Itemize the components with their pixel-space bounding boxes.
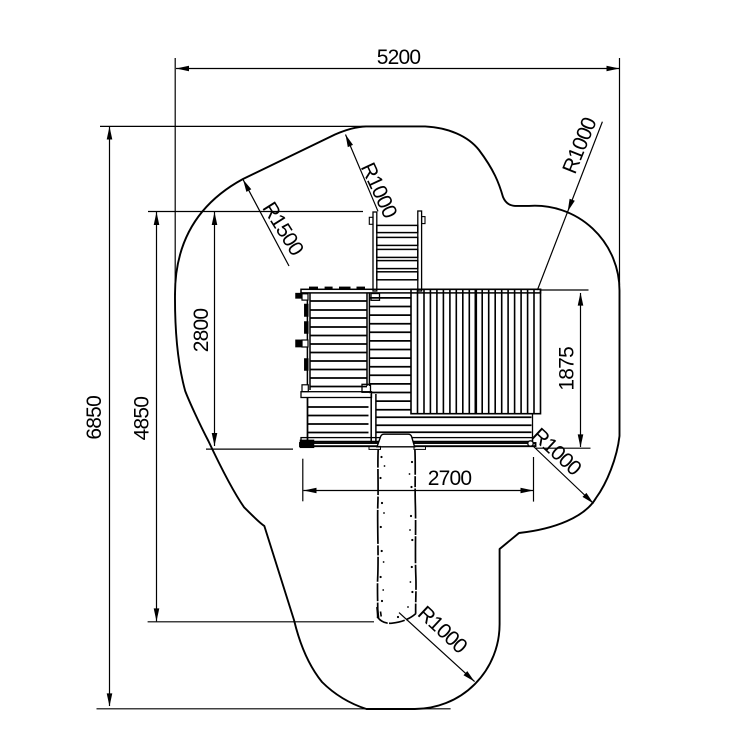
svg-text:2800: 2800 <box>190 309 213 353</box>
svg-text:6850: 6850 <box>83 396 106 440</box>
svg-text:5200: 5200 <box>377 46 421 69</box>
svg-text:4850: 4850 <box>130 397 153 441</box>
svg-text:2700: 2700 <box>428 467 472 490</box>
svg-text:1875: 1875 <box>555 347 578 391</box>
